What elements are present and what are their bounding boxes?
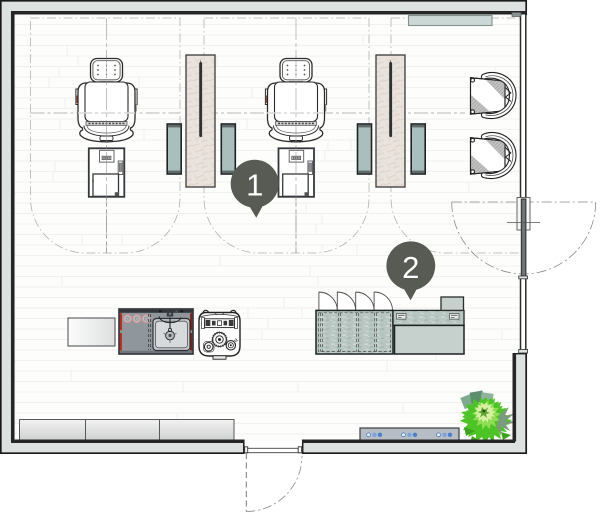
svg-text:1: 1 — [246, 168, 263, 203]
svg-text:2: 2 — [402, 250, 419, 285]
